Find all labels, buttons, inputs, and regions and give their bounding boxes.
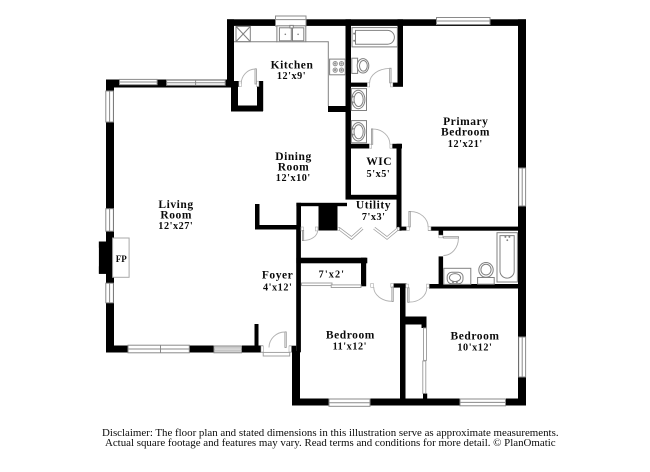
svg-text:Utility: Utility — [356, 200, 391, 212]
svg-text:Bedroom: Bedroom — [326, 330, 375, 342]
svg-text:Bedroom: Bedroom — [451, 331, 500, 343]
svg-text:Actual square footage and feat: Actual square footage and features may v… — [105, 437, 556, 449]
svg-text:12'x10': 12'x10' — [276, 173, 311, 184]
svg-text:WIC: WIC — [366, 156, 392, 168]
svg-text:Foyer: Foyer — [262, 270, 293, 282]
svg-text:Kitchen: Kitchen — [271, 60, 314, 72]
svg-text:11'x12': 11'x12' — [333, 341, 367, 352]
svg-text:4'x12': 4'x12' — [263, 283, 292, 294]
svg-text:12'x21': 12'x21' — [448, 139, 483, 150]
svg-text:5'x5': 5'x5' — [367, 169, 391, 180]
svg-text:Room: Room — [278, 161, 310, 173]
svg-text:12'x9': 12'x9' — [277, 71, 306, 82]
svg-text:12'x27': 12'x27' — [158, 221, 193, 232]
svg-text:7'x2': 7'x2' — [319, 270, 345, 281]
svg-text:FP: FP — [116, 254, 127, 264]
svg-text:10'x12': 10'x12' — [457, 343, 492, 354]
svg-text:7'x3': 7'x3' — [362, 212, 386, 223]
svg-text:Room: Room — [160, 209, 192, 221]
svg-text:Bedroom: Bedroom — [441, 126, 490, 138]
